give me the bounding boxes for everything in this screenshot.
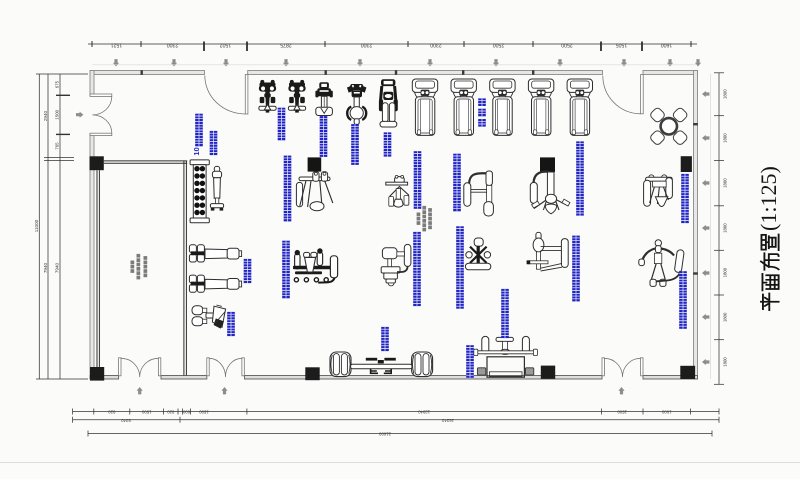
svg-text:1600: 1600 (661, 41, 673, 47)
svg-text:600: 600 (182, 410, 190, 415)
svg-text:2300: 2300 (167, 41, 179, 47)
svg-text:7940: 7940 (43, 262, 48, 273)
svg-text:1800: 1800 (723, 223, 728, 233)
svg-text:7940: 7940 (55, 262, 60, 273)
svg-text:2875: 2875 (280, 41, 292, 47)
svg-text:1800: 1800 (723, 178, 728, 188)
svg-text:1800: 1800 (723, 267, 728, 277)
svg-text:21600: 21600 (378, 432, 391, 437)
svg-text:1521: 1521 (111, 41, 123, 47)
svg-text:10: 10 (192, 147, 201, 155)
svg-text:1502: 1502 (220, 41, 232, 47)
svg-text:1800: 1800 (723, 357, 728, 367)
svg-text:2300: 2300 (361, 41, 373, 47)
svg-text:1800: 1800 (723, 89, 728, 99)
svg-text:1500: 1500 (141, 410, 151, 415)
svg-text:5340: 5340 (121, 418, 131, 423)
svg-text:2300: 2300 (430, 41, 442, 47)
svg-text:12940: 12940 (418, 410, 431, 415)
svg-text:2500: 2500 (561, 41, 573, 47)
svg-text:1600: 1600 (661, 410, 671, 415)
svg-text:1500: 1500 (199, 410, 209, 415)
svg-text:765: 765 (55, 142, 60, 150)
svg-text:2940: 2940 (43, 110, 48, 121)
svg-text:1505: 1505 (616, 41, 628, 47)
svg-text:1800: 1800 (723, 133, 728, 143)
svg-text:2500: 2500 (493, 41, 505, 47)
svg-text:1500: 1500 (55, 109, 60, 119)
svg-text:920: 920 (108, 410, 116, 415)
svg-text:920: 920 (167, 410, 175, 415)
svg-text:(1:125): (1:125) (756, 166, 781, 231)
svg-text:11000: 11000 (34, 219, 39, 232)
svg-text:675: 675 (55, 80, 60, 88)
svg-text:1500: 1500 (617, 410, 627, 415)
svg-text:1800: 1800 (723, 312, 728, 322)
svg-text:16240: 16240 (441, 418, 454, 423)
